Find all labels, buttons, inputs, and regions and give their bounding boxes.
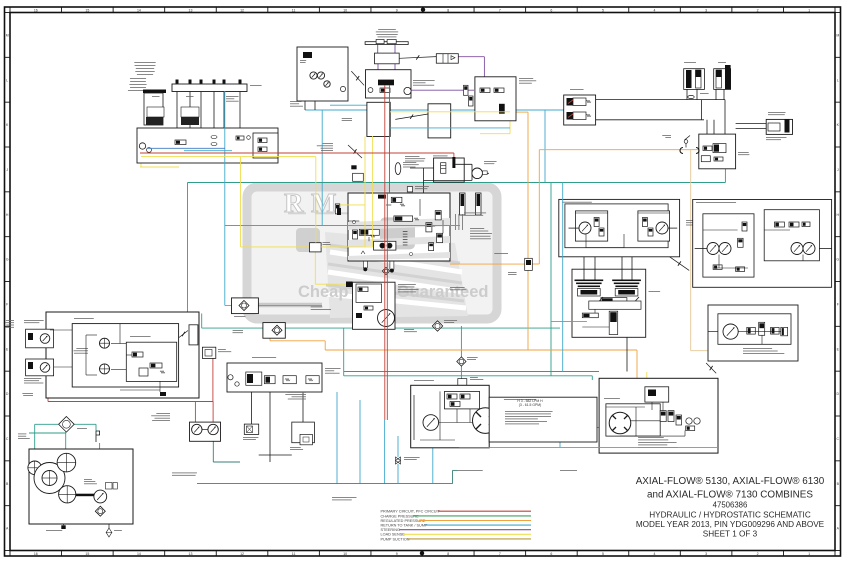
svg-text:13: 13 (189, 552, 193, 556)
svg-text:47506386: 47506386 (713, 501, 748, 510)
svg-text:8: 8 (447, 8, 449, 12)
svg-text:and AXIAL-FLOW® 7130 COMBINES: and AXIAL-FLOW® 7130 COMBINES (647, 490, 813, 501)
svg-text:11: 11 (292, 552, 296, 556)
svg-text:12: 12 (240, 8, 244, 12)
svg-text:G: G (6, 258, 9, 262)
svg-text:PRIMARY CIRCUIT, PFC CIRCUIT: PRIMARY CIRCUIT, PFC CIRCUIT (381, 510, 441, 514)
svg-text:10: 10 (343, 8, 347, 12)
svg-text:6: 6 (550, 8, 552, 12)
svg-text:6: 6 (550, 552, 552, 556)
svg-text:10: 10 (343, 552, 347, 556)
svg-text:M: M (836, 33, 839, 37)
svg-text:9: 9 (396, 8, 398, 12)
svg-text:F: F (6, 302, 8, 306)
svg-text:(3 - 61.5 GPM): (3 - 61.5 GPM) (519, 403, 541, 407)
svg-text:9: 9 (396, 552, 398, 556)
svg-text:2: 2 (757, 552, 759, 556)
svg-text:HYDRAULIC / HYDROSTATIC SCHEMA: HYDRAULIC / HYDROSTATIC SCHEMATIC (649, 510, 811, 519)
svg-text:4: 4 (654, 552, 656, 556)
svg-text:11: 11 (292, 8, 296, 12)
svg-text:16: 16 (34, 8, 38, 12)
svg-text:14: 14 (137, 8, 141, 12)
svg-text:15: 15 (85, 8, 89, 12)
svg-text:4: 4 (654, 8, 656, 12)
svg-text:SHEET 1 OF 3: SHEET 1 OF 3 (703, 529, 758, 538)
svg-text:7: 7 (499, 8, 501, 12)
svg-text:PUMP SUCTION: PUMP SUCTION (381, 537, 410, 541)
svg-text:J: J (837, 168, 839, 172)
svg-text:RETURN TO TANK / SUMP: RETURN TO TANK / SUMP (381, 524, 428, 528)
svg-text:F: F (837, 302, 839, 306)
svg-text:16: 16 (34, 552, 38, 556)
svg-text:M: M (6, 33, 9, 37)
svg-text:13: 13 (189, 8, 193, 12)
svg-text:G: G (836, 258, 839, 262)
svg-text:3: 3 (705, 552, 707, 556)
svg-text:1: 1 (808, 8, 810, 12)
svg-text:5: 5 (602, 552, 604, 556)
svg-text:7: 7 (499, 552, 501, 556)
svg-text:2: 2 (757, 8, 759, 12)
svg-text:3: 3 (705, 8, 707, 12)
svg-text:8: 8 (447, 552, 449, 556)
svg-text:AXIAL-FLOW® 5130, AXIAL-FLOW®: AXIAL-FLOW® 5130, AXIAL-FLOW® 6130 (636, 476, 825, 487)
svg-text:STEERING: STEERING (381, 528, 400, 532)
svg-text:LOAD SENSE: LOAD SENSE (381, 533, 406, 537)
svg-text:J: J (6, 168, 8, 172)
svg-text:L: L (837, 78, 839, 82)
svg-text:H 3 - 582 LPM H: H 3 - 582 LPM H (517, 399, 543, 403)
svg-text:15: 15 (85, 552, 89, 556)
svg-text:MODEL YEAR 2013, PIN YDG009296: MODEL YEAR 2013, PIN YDG009296 AND ABOVE (636, 520, 825, 529)
svg-text:12: 12 (240, 552, 244, 556)
svg-text:1: 1 (808, 552, 810, 556)
svg-text:L: L (6, 78, 8, 82)
svg-text:14: 14 (137, 552, 141, 556)
svg-text:5: 5 (602, 8, 604, 12)
